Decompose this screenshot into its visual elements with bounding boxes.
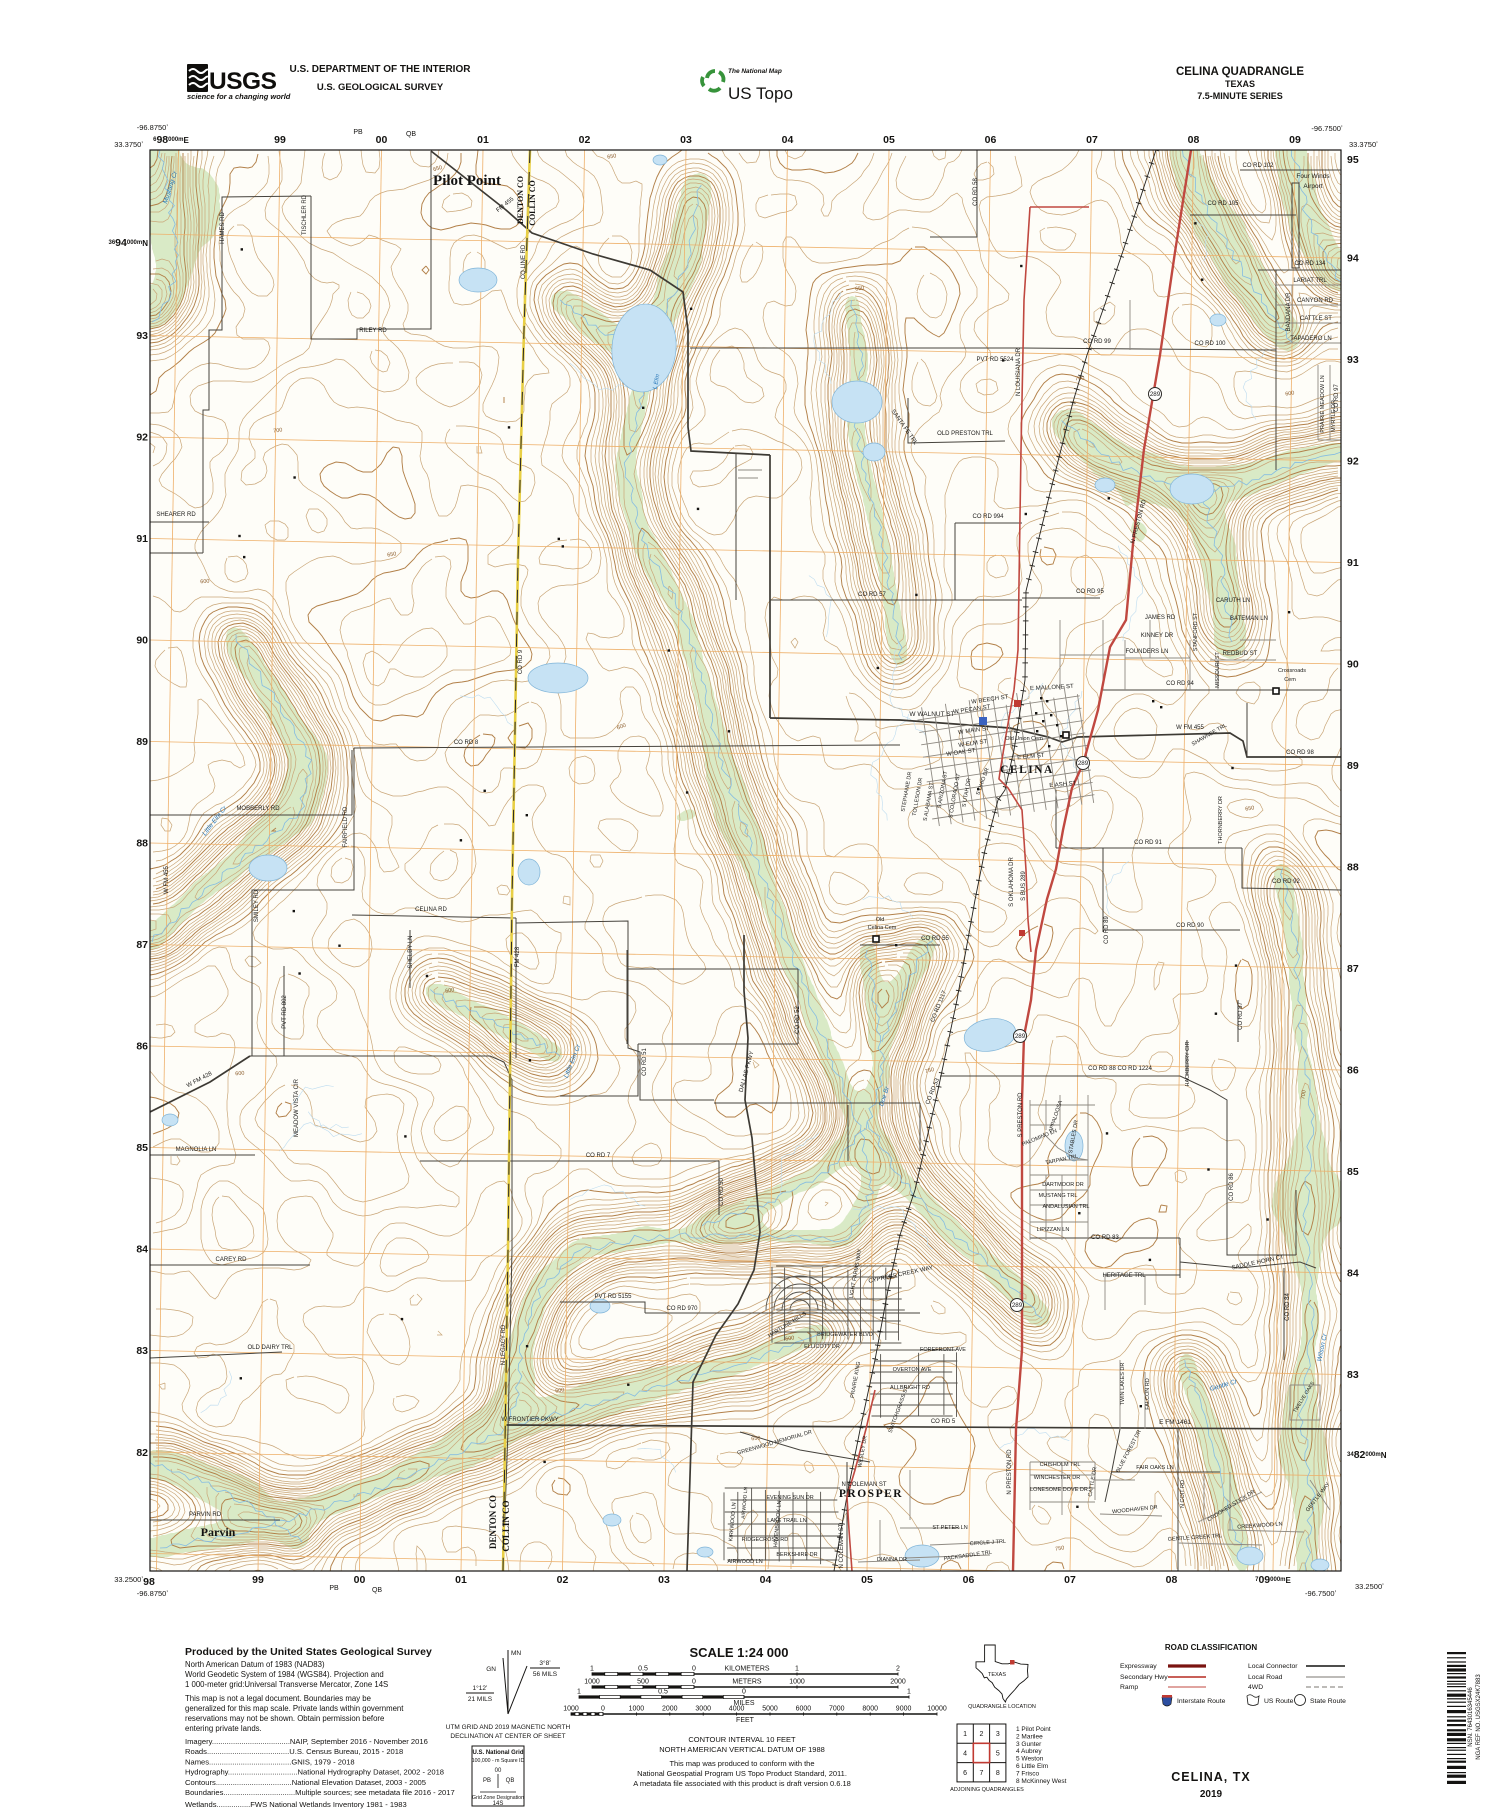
- svg-text:QB: QB: [406, 131, 416, 138]
- svg-text:Names.........................: Names...................................…: [185, 1757, 355, 1766]
- svg-text:1000: 1000: [789, 1679, 805, 1686]
- svg-text:METERS: METERS: [732, 1679, 762, 1686]
- svg-text:CO RD 83: CO RD 83: [1091, 1235, 1119, 1241]
- svg-text:4WD: 4WD: [1248, 1684, 1263, 1691]
- svg-text:33.3750ʼ: 33.3750ʼ: [1349, 140, 1378, 149]
- svg-text:600: 600: [200, 579, 210, 586]
- svg-text:Local Road: Local Road: [1248, 1674, 1283, 1681]
- svg-text:FOUNDERS LN: FOUNDERS LN: [1125, 649, 1168, 655]
- svg-text:Cem: Cem: [1284, 677, 1296, 683]
- svg-text:4: 4: [963, 1751, 967, 1758]
- svg-text:10000: 10000: [927, 1706, 947, 1713]
- svg-text:CELINA: CELINA: [1000, 764, 1054, 776]
- svg-text:ADJOINING QUADRANGLES: ADJOINING QUADRANGLES: [950, 1787, 1024, 1793]
- svg-text:U.S. DEPARTMENT OF THE INTERIO: U.S. DEPARTMENT OF THE INTERIOR: [290, 64, 472, 75]
- svg-text:1: 1: [590, 1666, 594, 1673]
- svg-text:CELINA, TX: CELINA, TX: [1171, 1770, 1250, 1784]
- svg-text:KILOMETERS: KILOMETERS: [724, 1666, 769, 1673]
- svg-text:7 Frisco: 7 Frisco: [1016, 1770, 1040, 1777]
- svg-text:00: 00: [354, 1574, 366, 1586]
- svg-text:CO RD 89: CO RD 89: [1104, 916, 1110, 944]
- svg-text:8 McKinney West: 8 McKinney West: [1016, 1778, 1067, 1785]
- svg-text:SHEARER RD: SHEARER RD: [156, 512, 196, 518]
- svg-text:93: 93: [1347, 354, 1359, 366]
- svg-text:DENTON CO: DENTON CO: [516, 176, 525, 224]
- svg-text:Roads.........................: Roads...................................…: [185, 1747, 403, 1756]
- svg-text:89: 89: [1347, 760, 1359, 772]
- svg-text:600: 600: [555, 1387, 565, 1394]
- svg-text:LAKE TRAIL LN: LAKE TRAIL LN: [767, 1518, 806, 1524]
- svg-text:EVENING SUN DR: EVENING SUN DR: [766, 1495, 813, 1501]
- svg-text:33.2500ʼ: 33.2500ʼ: [1355, 1582, 1384, 1591]
- svg-text:289: 289: [1012, 1302, 1023, 1309]
- svg-text:06: 06: [985, 134, 997, 146]
- svg-text:W WALNUT ST: W WALNUT ST: [909, 711, 954, 718]
- svg-text:9000: 9000: [896, 1706, 912, 1713]
- svg-text:CO RD 7: CO RD 7: [586, 1153, 611, 1159]
- svg-text:QB: QB: [506, 1778, 515, 1784]
- svg-text:Pilot Point: Pilot Point: [433, 173, 501, 189]
- svg-text:700: 700: [273, 427, 283, 434]
- svg-text:TEXAS: TEXAS: [1225, 79, 1255, 89]
- svg-text:-96.7500ʼ: -96.7500ʼ: [1311, 124, 1343, 133]
- svg-text:700: 700: [1075, 376, 1085, 383]
- svg-text:87: 87: [136, 939, 148, 951]
- svg-text:88: 88: [1347, 862, 1359, 874]
- svg-text:85: 85: [1347, 1166, 1359, 1178]
- svg-text:01: 01: [455, 1574, 467, 1586]
- svg-text:Ramp: Ramp: [1120, 1684, 1138, 1691]
- svg-text:SCALE 1:24 000: SCALE 1:24 000: [690, 1645, 789, 1660]
- svg-text:SHELBY LN: SHELBY LN: [408, 936, 414, 969]
- svg-text:CO RD 98: CO RD 98: [1286, 750, 1314, 756]
- svg-text:CO LINE RD: CO LINE RD: [521, 244, 527, 279]
- svg-text:MAGNOLIA LN: MAGNOLIA LN: [176, 1147, 217, 1153]
- svg-text:CO RD 52: CO RD 52: [795, 1006, 801, 1034]
- svg-text:05: 05: [861, 1574, 873, 1586]
- svg-text:HAMES RD: HAMES RD: [220, 211, 226, 243]
- svg-text:02: 02: [557, 1574, 569, 1586]
- svg-text:88: 88: [136, 838, 148, 850]
- svg-text:-96.7500ʼ: -96.7500ʼ: [1305, 1589, 1337, 1598]
- svg-text:2 Marilee: 2 Marilee: [1016, 1733, 1043, 1740]
- svg-text:CO RD 84: CO RD 84: [1285, 1293, 1291, 1321]
- svg-text:56 MILS: 56 MILS: [533, 1671, 558, 1678]
- svg-text:U.S. GEOLOGICAL SURVEY: U.S. GEOLOGICAL SURVEY: [317, 82, 444, 93]
- svg-text:KINNEY DR: KINNEY DR: [1141, 633, 1174, 639]
- svg-text:NSN. 7643016345446: NSN. 7643016345446: [1468, 1687, 1474, 1747]
- svg-text:-96.8750ʼ: -96.8750ʼ: [137, 1589, 169, 1598]
- svg-text:03: 03: [658, 1574, 670, 1586]
- svg-text:289: 289: [1150, 391, 1161, 398]
- svg-text:0: 0: [601, 1706, 605, 1713]
- svg-text:TAPADERO LN: TAPADERO LN: [1290, 336, 1331, 342]
- svg-text:1000: 1000: [563, 1706, 579, 1713]
- svg-text:86: 86: [136, 1041, 148, 1053]
- svg-text:The National Map: The National Map: [728, 68, 782, 75]
- svg-text:CO RD 87: CO RD 87: [1238, 1002, 1244, 1030]
- svg-text:BATEMAN LN: BATEMAN LN: [1230, 616, 1268, 622]
- svg-text:CO RD 86: CO RD 86: [1229, 1173, 1235, 1201]
- svg-text:86: 86: [1347, 1065, 1359, 1077]
- svg-text:04: 04: [782, 134, 794, 146]
- svg-text:0.5: 0.5: [658, 1689, 668, 1696]
- svg-text:90: 90: [136, 635, 148, 647]
- svg-text:04: 04: [760, 1574, 772, 1586]
- svg-text:CHISHOLM TRL: CHISHOLM TRL: [1040, 1462, 1081, 1468]
- svg-text:0: 0: [692, 1679, 696, 1686]
- svg-text:82: 82: [136, 1447, 148, 1459]
- svg-text:6: 6: [963, 1770, 967, 1777]
- svg-text:01: 01: [477, 134, 489, 146]
- svg-text:TEXAS: TEXAS: [988, 1672, 1006, 1678]
- svg-text:N COLEMAN ST: N COLEMAN ST: [839, 1523, 845, 1568]
- svg-text:07: 07: [1086, 134, 1098, 146]
- svg-text:DARTMOOR DR: DARTMOOR DR: [1042, 1182, 1083, 1188]
- svg-text:08: 08: [1166, 1574, 1178, 1586]
- svg-text:Parvin: Parvin: [201, 1525, 236, 1539]
- svg-text:NORTH AMERICAN VERTICAL DATUM: NORTH AMERICAN VERTICAL DATUM OF 1988: [659, 1745, 825, 1754]
- svg-text:99: 99: [274, 134, 286, 146]
- svg-text:entering private lands.: entering private lands.: [185, 1724, 262, 1733]
- svg-text:PB: PB: [353, 129, 363, 136]
- svg-text:DIANNA DR: DIANNA DR: [877, 1557, 907, 1563]
- svg-text:State Route: State Route: [1310, 1698, 1346, 1705]
- svg-text:3: 3: [996, 1731, 1000, 1738]
- svg-text:83: 83: [136, 1345, 148, 1357]
- svg-text:FAIR OAKS LN: FAIR OAKS LN: [1136, 1465, 1174, 1471]
- svg-text:99: 99: [252, 1574, 264, 1586]
- svg-text:07: 07: [1064, 1574, 1076, 1586]
- svg-text:A metadata file associated wit: A metadata file associated with this pro…: [633, 1779, 851, 1788]
- svg-text:HERITAGE TRL: HERITAGE TRL: [1102, 1273, 1146, 1279]
- svg-text:CELINA QUADRANGLE: CELINA QUADRANGLE: [1176, 66, 1304, 78]
- svg-text:14S: 14S: [493, 1801, 504, 1807]
- svg-text:CONTOUR INTERVAL 10 FEET: CONTOUR INTERVAL 10 FEET: [688, 1735, 796, 1744]
- svg-text:RILEY RD: RILEY RD: [359, 328, 387, 334]
- svg-text:33.2500ʼ: 33.2500ʼ: [114, 1575, 143, 1584]
- svg-text:QB: QB: [372, 1587, 382, 1594]
- svg-text:2019: 2019: [1200, 1789, 1223, 1800]
- svg-text:BRIDGEWATER BLVD: BRIDGEWATER BLVD: [817, 1332, 873, 1338]
- svg-text:Airport: Airport: [1303, 183, 1322, 190]
- svg-text:CO RD 9: CO RD 9: [518, 649, 524, 674]
- svg-text:21 MILS: 21 MILS: [468, 1696, 493, 1703]
- svg-text:SMILEY RD: SMILEY RD: [254, 889, 260, 922]
- svg-text:OLD DAIRY TRL: OLD DAIRY TRL: [247, 1345, 293, 1351]
- svg-text:CARUTH LN: CARUTH LN: [1216, 598, 1250, 604]
- svg-text:OLD PRESTON TRL: OLD PRESTON TRL: [937, 431, 993, 437]
- svg-text:ST PETER LN: ST PETER LN: [932, 1525, 967, 1531]
- svg-text:Interstate Route: Interstate Route: [1177, 1698, 1226, 1705]
- svg-text:-96.8750ʼ: -96.8750ʼ: [137, 123, 169, 132]
- svg-text:4 Aubrey: 4 Aubrey: [1016, 1748, 1042, 1755]
- svg-text:1000: 1000: [584, 1679, 600, 1686]
- svg-text:09: 09: [1289, 134, 1301, 146]
- svg-text:CO RD 105: CO RD 105: [1207, 201, 1239, 207]
- svg-text:1: 1: [963, 1731, 967, 1738]
- svg-text:CO RD 8: CO RD 8: [454, 740, 479, 746]
- svg-text:CO RD 88 CO RD 1224: CO RD 88 CO RD 1224: [1088, 1066, 1152, 1072]
- svg-text:87: 87: [1347, 963, 1359, 975]
- svg-text:7000: 7000: [829, 1706, 845, 1713]
- svg-text:Celina Cem: Celina Cem: [868, 925, 897, 931]
- svg-text:DENTON CO: DENTON CO: [488, 1495, 498, 1549]
- svg-text:CELINA RD: CELINA RD: [415, 907, 447, 913]
- svg-text:USGS: USGS: [209, 68, 277, 95]
- svg-text:289: 289: [1078, 760, 1089, 767]
- svg-text:N PRESTON RD: N PRESTON RD: [1007, 1449, 1013, 1495]
- svg-text:COLLIN CO: COLLIN CO: [528, 180, 537, 226]
- svg-text:Old Union Cem: Old Union Cem: [1005, 736, 1043, 742]
- svg-text:2: 2: [896, 1666, 900, 1673]
- svg-text:OVERTON AVE: OVERTON AVE: [893, 1367, 932, 1373]
- svg-text:PVT RD 5155: PVT RD 5155: [595, 1294, 633, 1300]
- svg-text:00: 00: [495, 1768, 502, 1774]
- svg-text:This map is not a legal docume: This map is not a legal document. Bounda…: [185, 1694, 371, 1703]
- svg-text:TWIN LAKES DR: TWIN LAKES DR: [1120, 1363, 1126, 1406]
- svg-text:650: 650: [751, 1436, 761, 1443]
- svg-text:95: 95: [1347, 154, 1359, 166]
- svg-text:MYRTLE DR: MYRTLE DR: [1331, 400, 1337, 432]
- svg-text:CO RD 970: CO RD 970: [666, 1306, 698, 1312]
- svg-text:N COIT RD: N COIT RD: [1180, 1480, 1186, 1508]
- svg-text:0.5: 0.5: [638, 1666, 648, 1673]
- svg-text:National Geospatial Program US: National Geospatial Program US Topo Prod…: [637, 1769, 847, 1778]
- svg-text:600: 600: [1285, 390, 1295, 397]
- svg-text:89: 89: [136, 736, 148, 748]
- svg-text:02: 02: [579, 134, 591, 146]
- svg-text:CO RD 91: CO RD 91: [1134, 840, 1162, 846]
- svg-text:93: 93: [136, 330, 148, 342]
- svg-text:1°12ʼ: 1°12ʼ: [473, 1684, 488, 1692]
- svg-text:N LEGACY RD: N LEGACY RD: [501, 1324, 507, 1365]
- svg-text:PARVIN RD: PARVIN RD: [189, 1512, 222, 1518]
- svg-text:NGA REF NO. USGSX24K7883: NGA REF NO. USGSX24K7883: [1476, 1674, 1482, 1760]
- svg-text:6 Little Elm: 6 Little Elm: [1016, 1763, 1048, 1770]
- svg-text:FM 428: FM 428: [515, 946, 521, 967]
- svg-text:Local Connector: Local Connector: [1248, 1663, 1298, 1670]
- svg-text:PROSPER: PROSPER: [839, 1488, 903, 1500]
- svg-text:N LOUISIANA DR: N LOUISIANA DR: [1016, 347, 1022, 396]
- svg-text:98: 98: [143, 1576, 155, 1588]
- svg-text:DECLINATION AT CENTER OF SHEET: DECLINATION AT CENTER OF SHEET: [450, 1733, 565, 1740]
- svg-text:4000: 4000: [729, 1706, 745, 1713]
- svg-text:S BUS 289: S BUS 289: [1021, 870, 1027, 900]
- svg-text:90: 90: [1347, 659, 1359, 671]
- svg-text:CATTLE ST: CATTLE ST: [1300, 316, 1332, 322]
- svg-text:CO RD 55: CO RD 55: [921, 936, 949, 942]
- svg-text:0: 0: [742, 1689, 746, 1696]
- svg-text:W FM 455: W FM 455: [164, 866, 170, 894]
- svg-text:Secondary Hwy: Secondary Hwy: [1120, 1674, 1168, 1681]
- svg-text:00: 00: [376, 134, 388, 146]
- svg-text:reservations may not be shown.: reservations may not be shown. Obtain pe…: [185, 1714, 384, 1723]
- svg-text:2: 2: [979, 1731, 983, 1738]
- svg-text:CO RD 92: CO RD 92: [1272, 879, 1300, 885]
- svg-text:CO RD 994: CO RD 994: [972, 514, 1004, 520]
- svg-text:94: 94: [1347, 253, 1359, 265]
- svg-text:8: 8: [996, 1770, 1000, 1777]
- svg-text:05: 05: [883, 134, 895, 146]
- svg-text:PRAIRIE MEADOW LN: PRAIRIE MEADOW LN: [1320, 375, 1326, 432]
- svg-text:2000: 2000: [662, 1706, 678, 1713]
- svg-text:BERKSHIRE DR: BERKSHIRE DR: [776, 1552, 817, 1558]
- svg-text:83: 83: [1347, 1369, 1359, 1381]
- svg-text:MOBBERLY RD: MOBBERLY RD: [236, 806, 280, 812]
- svg-text:33.3750ʼ: 33.3750ʼ: [114, 140, 143, 149]
- svg-text:HACKBERRY CIR: HACKBERRY CIR: [1185, 1041, 1191, 1086]
- svg-text:W FRONTIER PKWY: W FRONTIER PKWY: [501, 1417, 558, 1423]
- svg-text:Old: Old: [876, 917, 885, 923]
- svg-text:5 Weston: 5 Weston: [1016, 1756, 1044, 1763]
- svg-text:Expressway: Expressway: [1120, 1663, 1157, 1670]
- svg-text:BANDANA DR: BANDANA DR: [1286, 292, 1292, 332]
- svg-text:FALCON RD: FALCON RD: [1145, 1378, 1151, 1410]
- svg-text:CO RD 94: CO RD 94: [1166, 681, 1194, 687]
- svg-text:S OKLAHOMA DR: S OKLAHOMA DR: [1009, 856, 1015, 906]
- svg-text:8000: 8000: [862, 1706, 878, 1713]
- svg-text:TISCHLER RD: TISCHLER RD: [302, 194, 308, 235]
- svg-text:1000: 1000: [629, 1706, 645, 1713]
- svg-text:1 Pilot Point: 1 Pilot Point: [1016, 1726, 1051, 1733]
- svg-text:CO RD 58: CO RD 58: [973, 178, 979, 206]
- svg-text:Produced by the United States: Produced by the United States Geological…: [185, 1646, 432, 1658]
- svg-text:600: 600: [235, 1071, 245, 1078]
- svg-text:CO RD 51: CO RD 51: [642, 1048, 648, 1076]
- svg-text:FOREFRONT AVE: FOREFRONT AVE: [920, 1347, 966, 1353]
- svg-text:1: 1: [577, 1689, 581, 1696]
- svg-text:MN: MN: [511, 1650, 521, 1657]
- svg-text:3000: 3000: [695, 1706, 711, 1713]
- svg-text:U.S. National Grid: U.S. National Grid: [472, 1750, 523, 1756]
- svg-text:1: 1: [795, 1666, 799, 1673]
- svg-text:REDBUD ST: REDBUD ST: [1223, 651, 1258, 657]
- svg-text:E FM 1461: E FM 1461: [1159, 1419, 1191, 1426]
- svg-text:1: 1: [907, 1689, 911, 1696]
- svg-text:LIPIZZAN LN: LIPIZZAN LN: [1037, 1227, 1070, 1233]
- svg-text:MISSOURI ST: MISSOURI ST: [1215, 651, 1221, 687]
- svg-text:S PRESTON RD: S PRESTON RD: [1018, 1092, 1024, 1138]
- svg-text:CO RD 134: CO RD 134: [1294, 261, 1326, 267]
- svg-text:PB: PB: [329, 1585, 339, 1592]
- svg-text:92: 92: [136, 432, 148, 444]
- svg-text:CAREY RD: CAREY RD: [216, 1257, 248, 1263]
- svg-text:THORNBERRY DR: THORNBERRY DR: [1218, 796, 1224, 844]
- svg-text:US Topo: US Topo: [728, 84, 793, 103]
- svg-text:03: 03: [680, 134, 692, 146]
- svg-text:FEET: FEET: [736, 1717, 755, 1724]
- svg-text:FAIRFIELD RD: FAIRFIELD RD: [343, 806, 349, 847]
- svg-text:5000: 5000: [762, 1706, 778, 1713]
- svg-text:CO RD 102: CO RD 102: [1242, 163, 1274, 169]
- svg-text:Contours......................: Contours................................…: [185, 1778, 426, 1787]
- svg-text:5: 5: [996, 1751, 1000, 1758]
- svg-text:ANDALUSIAN TRL: ANDALUSIAN TRL: [1043, 1204, 1090, 1210]
- svg-text:CO RD 90: CO RD 90: [1176, 923, 1204, 929]
- svg-text:08: 08: [1188, 134, 1200, 146]
- svg-text:UTM GRID AND 2019 MAGNETIC NOR: UTM GRID AND 2019 MAGNETIC NORTH: [446, 1724, 571, 1731]
- svg-text:Four Winds: Four Winds: [1296, 173, 1330, 180]
- svg-text:Boundaries....................: Boundaries..............................…: [185, 1788, 455, 1797]
- svg-text:ROAD CLASSIFICATION: ROAD CLASSIFICATION: [1165, 1643, 1258, 1652]
- svg-text:World Geodetic System of 1984: World Geodetic System of 1984 (WGS84). P…: [185, 1670, 384, 1679]
- svg-text:06: 06: [963, 1574, 975, 1586]
- svg-text:84: 84: [1347, 1268, 1359, 1280]
- svg-text:91: 91: [1347, 557, 1359, 569]
- svg-text:W FM 455: W FM 455: [1176, 725, 1204, 731]
- svg-text:0: 0: [692, 1666, 696, 1673]
- svg-text:PVT RD 5524: PVT RD 5524: [977, 357, 1015, 363]
- svg-text:3°8ʼ: 3°8ʼ: [539, 1659, 551, 1667]
- svg-text:COLLIN CO: COLLIN CO: [501, 1500, 511, 1551]
- svg-text:91: 91: [136, 533, 148, 545]
- svg-text:2000: 2000: [890, 1679, 906, 1686]
- svg-text:500: 500: [637, 1679, 649, 1686]
- svg-text:GN: GN: [486, 1666, 496, 1673]
- svg-text:QUADRANGLE LOCATION: QUADRANGLE LOCATION: [968, 1704, 1036, 1710]
- svg-text:CO RD 50: CO RD 50: [719, 1178, 725, 1206]
- svg-text:generalized for this map scale: generalized for this map scale. Private …: [185, 1704, 404, 1713]
- svg-text:This map was produced to confo: This map was produced to conform with th…: [669, 1759, 814, 1768]
- svg-text:STANFORD ST: STANFORD ST: [1193, 612, 1199, 651]
- svg-text:PVT RD 802: PVT RD 802: [282, 995, 288, 1029]
- svg-text:US Route: US Route: [1264, 1698, 1294, 1705]
- svg-text:7.5-MINUTE SERIES: 7.5-MINUTE SERIES: [1197, 91, 1283, 101]
- svg-text:ELLICOTT DR: ELLICOTT DR: [804, 1344, 840, 1350]
- svg-text:CO RD 100: CO RD 100: [1194, 341, 1226, 347]
- svg-text:LARIAT TRL: LARIAT TRL: [1293, 278, 1327, 284]
- svg-text:84: 84: [136, 1244, 148, 1256]
- svg-text:Wetlands................FWS: Wetlands................FWS National Wet…: [185, 1800, 407, 1809]
- svg-text:3 Gunter: 3 Gunter: [1016, 1741, 1042, 1748]
- svg-text:science for a changing world: science for a changing world: [187, 92, 291, 101]
- svg-text:CO RD 57: CO RD 57: [858, 592, 886, 598]
- svg-text:CO RD 95: CO RD 95: [1076, 589, 1104, 595]
- svg-text:100,000 - m Square ID: 100,000 - m Square ID: [472, 1758, 525, 1764]
- svg-text:MUSTANG TRL: MUSTANG TRL: [1039, 1193, 1078, 1199]
- svg-text:CO RD 5: CO RD 5: [931, 1419, 956, 1425]
- svg-text:CO RD 99: CO RD 99: [1083, 339, 1111, 345]
- svg-text:Crossroads: Crossroads: [1278, 668, 1306, 674]
- svg-text:AIRWOOD LN: AIRWOOD LN: [727, 1559, 762, 1565]
- svg-text:CANYON RD: CANYON RD: [1297, 298, 1334, 304]
- svg-text:1 000-meter grid:Universal Tra: 1 000-meter grid:Universal Transverse Me…: [185, 1680, 388, 1689]
- svg-text:7: 7: [979, 1770, 983, 1777]
- svg-text:PB: PB: [483, 1778, 491, 1784]
- svg-text:North American Datum of 1983 (: North American Datum of 1983 (NAD83): [185, 1660, 325, 1669]
- svg-text:JAMES RD: JAMES RD: [1145, 615, 1176, 621]
- svg-text:LONESOME DOVE DR: LONESOME DOVE DR: [1030, 1487, 1088, 1493]
- svg-text:RIDGECROSS RD: RIDGECROSS RD: [742, 1537, 788, 1543]
- svg-text:WINCHESTER DR: WINCHESTER DR: [1034, 1475, 1080, 1481]
- svg-text:Hydrography...................: Hydrography.............................…: [185, 1768, 444, 1777]
- svg-text:6000: 6000: [796, 1706, 812, 1713]
- svg-text:Imagery.......................: Imagery.................................…: [185, 1737, 428, 1746]
- svg-text:92: 92: [1347, 456, 1359, 468]
- svg-text:289: 289: [1015, 1033, 1026, 1040]
- svg-text:85: 85: [136, 1142, 148, 1154]
- svg-text:MEADOW VISTA CIR: MEADOW VISTA CIR: [294, 1078, 300, 1137]
